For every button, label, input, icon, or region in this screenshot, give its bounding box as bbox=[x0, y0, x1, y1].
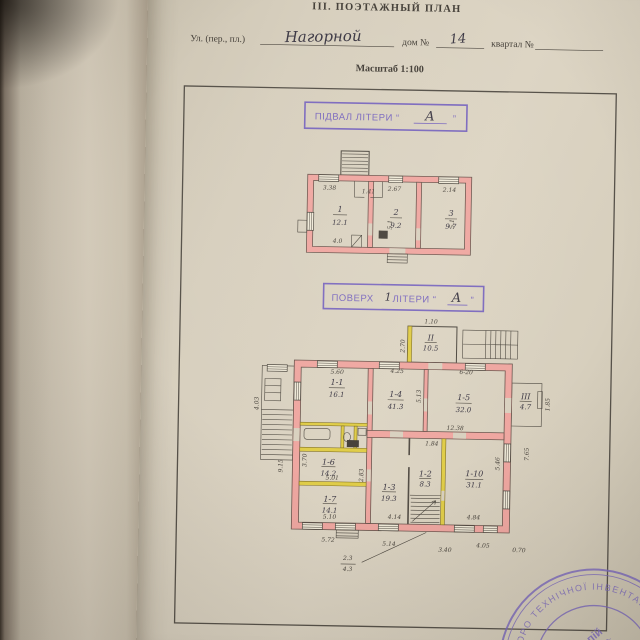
room-1-5-area: 32.0 bbox=[456, 406, 472, 414]
room-1-3-id: 1-3 bbox=[383, 483, 396, 492]
floor1-title-stamp: ПОВЕРХ 1 ЛІТЕРИ “ А ” bbox=[323, 284, 483, 312]
basement-door-gap-2 bbox=[416, 228, 420, 240]
dim-label: 4.3 bbox=[342, 566, 353, 573]
scale-label: Масштаб 1:100 bbox=[356, 63, 424, 75]
dim-label: 5.14 bbox=[382, 541, 396, 548]
room-1-4-area: 41.3 bbox=[387, 403, 404, 411]
dim-label: 2.70 bbox=[400, 339, 407, 354]
dim-label: 4.84 bbox=[466, 514, 481, 521]
window bbox=[483, 526, 497, 533]
photo-scene: III. ПОЭТАЖНЫЙ ПЛАН Ул. (пер., пл.) Наго… bbox=[0, 0, 640, 640]
basement-stoop bbox=[387, 254, 407, 263]
sink bbox=[358, 428, 366, 435]
basement-window-1 bbox=[319, 175, 339, 182]
floor1-section: ПОВЕРХ 1 ЛІТЕРИ “ А ” bbox=[250, 282, 553, 576]
floor1-number-handwritten: 1 bbox=[384, 291, 391, 304]
basement-window-4 bbox=[307, 212, 314, 230]
basement-letter-handwritten: А bbox=[424, 109, 435, 124]
dim-label: 2.83 bbox=[358, 468, 365, 483]
floor1-stamp-quote: ” bbox=[470, 295, 473, 306]
quarter-underline bbox=[535, 49, 603, 50]
dim-label: 4.03 bbox=[253, 396, 260, 411]
house-value-handwritten: 14 bbox=[449, 31, 467, 47]
floor1-stamp-label: ПОВЕРХ bbox=[331, 293, 373, 305]
yellow-partition-6 bbox=[440, 439, 446, 525]
stamp-center-line-1: Для копій bbox=[556, 626, 605, 640]
exterior-stairs-top-steps bbox=[462, 330, 518, 359]
basement-room-3-id: 3 bbox=[448, 209, 453, 218]
bathtub bbox=[304, 428, 330, 439]
yellow-partition-4 bbox=[300, 447, 367, 452]
page-title: III. ПОЭТАЖНЫЙ ПЛАН bbox=[312, 0, 461, 15]
room-1-6-id: 1-6 bbox=[322, 458, 335, 467]
house-label: дом № bbox=[402, 38, 429, 48]
basement-left-annex bbox=[298, 220, 307, 232]
door-gap bbox=[367, 469, 371, 481]
basement-stoop-steps bbox=[387, 257, 407, 260]
dim-label: 4.0 bbox=[332, 238, 343, 245]
basement-room-2-id: 2 bbox=[392, 208, 398, 217]
basement-stamp-label: ПІДВАЛ ЛІТЕРИ “ bbox=[315, 111, 400, 124]
porch-2-id: II bbox=[427, 333, 435, 342]
quarter-label: квартал № bbox=[491, 40, 534, 51]
stamp-ring-text: МІСЬКЕ БЮРО ТЕХНІЧНОЇ ІНВЕНТАРИЗАЦІЇ bbox=[480, 548, 640, 640]
dim-label: 5.01 bbox=[325, 475, 338, 482]
room-1-3-area: 19.3 bbox=[381, 495, 397, 503]
page-header: III. ПОЭТАЖНЫЙ ПЛАН Ул. (пер., пл.) Наго… bbox=[190, 0, 604, 79]
photo-corner-shadow bbox=[0, 0, 120, 90]
interior-wall-vertical-main bbox=[365, 368, 373, 523]
dim-label: 4.14 bbox=[387, 514, 402, 521]
room-1-4-id: 1-4 bbox=[389, 390, 402, 399]
door-gap bbox=[390, 431, 403, 437]
window bbox=[335, 523, 355, 530]
dim-label: 7.65 bbox=[524, 447, 531, 461]
left-annex-cell bbox=[265, 378, 281, 400]
dim-label: 0.70 bbox=[512, 547, 526, 554]
dim-label: 1.10 bbox=[424, 318, 438, 325]
dim-label: 6-20 bbox=[459, 369, 473, 376]
book-page-edges bbox=[0, 0, 158, 640]
dim-label: 2.67 bbox=[387, 186, 402, 193]
page-drawing: III. ПОЭТАЖНЫЙ ПЛАН Ул. (пер., пл.) Наго… bbox=[136, 0, 640, 640]
dim-label: 4.05 bbox=[475, 542, 490, 549]
house-underline bbox=[436, 48, 484, 49]
room-1-2-id: 1-2 bbox=[419, 469, 432, 478]
dim-label: 2.3 bbox=[342, 555, 353, 562]
opening-to-porch-3 bbox=[505, 398, 511, 413]
room-1-1-id: 1-1 bbox=[330, 378, 343, 387]
room-1-2-area: 8.3 bbox=[419, 480, 431, 488]
dim-label: 3.38 bbox=[323, 185, 337, 192]
window bbox=[378, 524, 398, 531]
dim-label: 9.15 bbox=[277, 459, 284, 473]
basement-door-gap-1 bbox=[368, 223, 372, 235]
basement-title-stamp: ПІДВАЛ ЛІТЕРИ “ А ” bbox=[305, 102, 467, 131]
street-label: Ул. (пер., пл.) bbox=[190, 33, 245, 45]
opening-to-left-annex bbox=[293, 428, 299, 441]
door-gap bbox=[441, 491, 444, 501]
basement-stamp-quote: ” bbox=[453, 114, 456, 125]
room-1-1-area: 16.1 bbox=[329, 391, 345, 399]
basement-window-2 bbox=[389, 176, 403, 183]
thin-wall-1-3 bbox=[408, 438, 410, 524]
basement-room-1-id: 1 bbox=[338, 205, 343, 214]
basement-room-1-area: 12.1 bbox=[332, 219, 348, 227]
left-annex-outline bbox=[261, 365, 295, 460]
yellow-partition-1 bbox=[300, 422, 367, 426]
floor1-plan: 1-1 16.1 1-4 41.3 1-5 32.0 1-6 14.2 1-7 … bbox=[250, 315, 553, 576]
dim-label: 5.60 bbox=[330, 369, 344, 376]
dim-label: 12.38 bbox=[446, 425, 463, 432]
dim-label: 1.41 bbox=[362, 188, 375, 195]
dim-label: 5.13 bbox=[416, 389, 423, 403]
room-1-5-id: 1-5 bbox=[457, 393, 470, 402]
basement-window-3 bbox=[439, 177, 459, 184]
room-1-10-area: 31.1 bbox=[466, 481, 482, 489]
window bbox=[503, 491, 510, 509]
floor1-letter-handwritten: А bbox=[450, 291, 461, 306]
bottom-stoop bbox=[336, 530, 358, 538]
left-annex-window bbox=[267, 365, 287, 372]
porch-3-area: 4.7 bbox=[519, 403, 532, 411]
dim-label: 5.1 bbox=[387, 220, 394, 230]
dim-label: 5.46 bbox=[494, 457, 501, 471]
basement-stove-2 bbox=[379, 231, 388, 239]
passport-page: III. ПОЭТАЖНЫЙ ПЛАН Ул. (пер., пл.) Наго… bbox=[136, 0, 640, 640]
dim-label: 3.70 bbox=[301, 453, 308, 467]
dim-label: 2.14 bbox=[442, 187, 457, 194]
floor1-stamp-label-2: ЛІТЕРИ “ bbox=[392, 294, 436, 306]
interior-wall-horizontal bbox=[367, 430, 504, 440]
plan-border bbox=[175, 86, 617, 631]
left-annex-stair-steps bbox=[262, 414, 293, 450]
window bbox=[302, 523, 322, 530]
dim-label: 4.25 bbox=[389, 368, 404, 375]
interior-stairs-steps bbox=[409, 495, 440, 523]
basement-stove-1-diagonal bbox=[351, 235, 361, 247]
porch-2-yellow-wall bbox=[407, 326, 412, 362]
yellow-partition-5 bbox=[299, 481, 366, 486]
bottom-stoop-steps bbox=[336, 533, 358, 536]
dim-label: 5.10 bbox=[323, 514, 337, 521]
porch-3-id: III bbox=[520, 392, 531, 401]
dim-label: 5.72 bbox=[321, 537, 335, 544]
basement-plan: 1 12.1 2 9.2 3 9.7 3.38 2.67 2.14 1.41 4… bbox=[297, 150, 472, 264]
dim-label: 3.40 bbox=[438, 547, 452, 554]
door-gap bbox=[424, 398, 427, 411]
window bbox=[504, 444, 511, 462]
porch-2-area: 10.5 bbox=[423, 344, 439, 352]
basement-bottom-opening bbox=[389, 248, 405, 253]
window bbox=[454, 525, 474, 532]
entrance-opening-top bbox=[428, 363, 442, 369]
basement-entry-stair-steps bbox=[342, 154, 368, 172]
stove-dark-rect bbox=[347, 440, 359, 447]
door-gap bbox=[368, 401, 372, 414]
basement-letter-underline bbox=[414, 123, 447, 124]
dim-label: 1.85 bbox=[544, 398, 551, 412]
street-value-handwritten: Нагорной bbox=[284, 27, 362, 46]
dim-label: 1.84 bbox=[425, 440, 439, 447]
basement-section: ПІДВАЛ ЛІТЕРИ “ А ” bbox=[297, 102, 473, 264]
room-1-7-id: 1-7 bbox=[323, 495, 337, 504]
room-1-10-id: 1-10 bbox=[465, 469, 483, 478]
window bbox=[294, 382, 301, 400]
door-gap bbox=[453, 432, 466, 438]
dim-label: 5.1 bbox=[449, 219, 456, 229]
window bbox=[317, 361, 337, 368]
